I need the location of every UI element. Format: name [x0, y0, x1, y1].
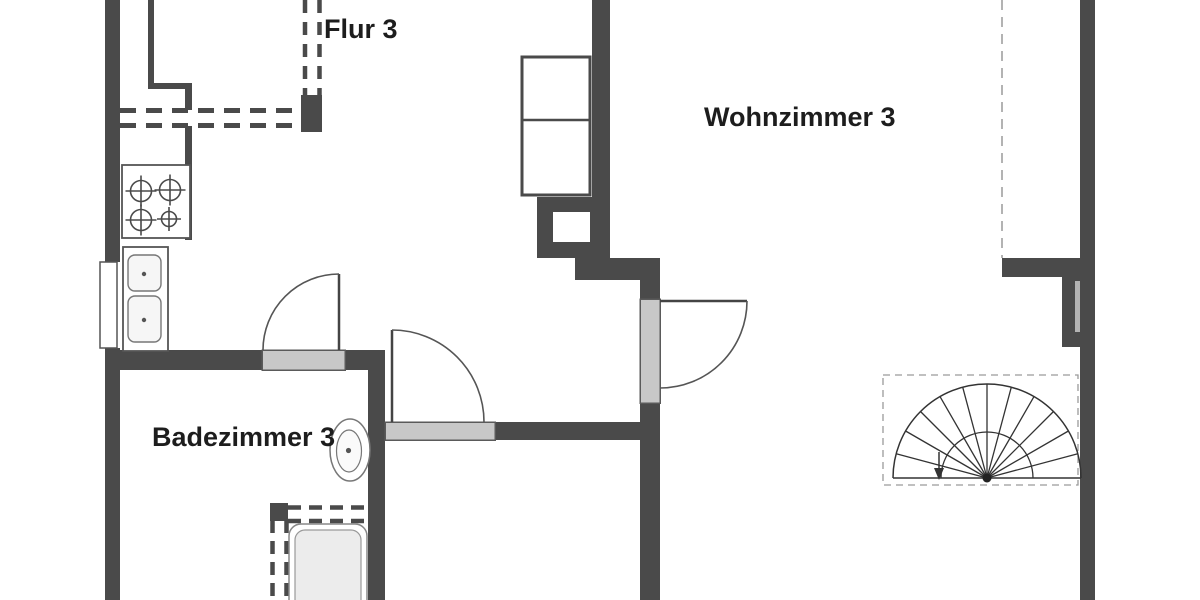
toilet-drain	[346, 448, 351, 453]
room-label-flur: Flur 3	[324, 14, 398, 44]
hall-door-sill	[385, 422, 495, 440]
livingroom-door-swing-arc	[660, 301, 747, 388]
sink-drain-top	[142, 272, 146, 276]
walls	[105, 0, 1095, 600]
wall-bathroom-right	[368, 350, 385, 600]
hall-door-swing-arc	[392, 330, 484, 422]
livingroom-door-sill	[640, 299, 660, 403]
wall-right-pier-slot	[1075, 281, 1080, 332]
room-label-badezimmer: Badezimmer 3	[152, 422, 335, 452]
staircase-dashed-boundary	[883, 375, 1078, 485]
doors	[263, 274, 747, 422]
wall-left-upper	[105, 0, 120, 262]
cupboard-icon	[522, 57, 590, 195]
wall-right-stub	[1002, 258, 1080, 277]
wall-bathroom-top-left	[105, 350, 262, 370]
wall-livingroom-left-lower	[640, 402, 660, 600]
room-label-wohnzimmer: Wohnzimmer 3	[704, 102, 896, 132]
bathtub-basin	[295, 530, 361, 600]
wall-flur-pillar	[301, 95, 322, 132]
door-sills	[262, 299, 660, 440]
sink-drain-bottom	[142, 318, 146, 322]
floor-plan: Flur 3 Wohnzimmer 3 Badezimmer 3	[0, 0, 1200, 600]
chimney-shaft-opening	[553, 212, 590, 242]
bathtub-corner-block	[270, 503, 288, 521]
bathroom-door-swing-arc	[263, 274, 339, 350]
wall-hall-bottom	[495, 422, 643, 440]
wall-kitchen-divider-upper	[185, 83, 192, 110]
staircase-center-post	[983, 474, 992, 483]
window-icon	[100, 262, 117, 348]
bathroom-door-sill	[262, 350, 345, 370]
spiral-staircase-icon	[883, 375, 1081, 485]
wall-left-lower	[105, 348, 120, 600]
wall-thin-topleft-vertical	[148, 0, 154, 87]
wall-center-step	[575, 258, 660, 280]
staircase-treads	[896, 384, 1078, 478]
wall-center-vertical	[592, 0, 610, 262]
